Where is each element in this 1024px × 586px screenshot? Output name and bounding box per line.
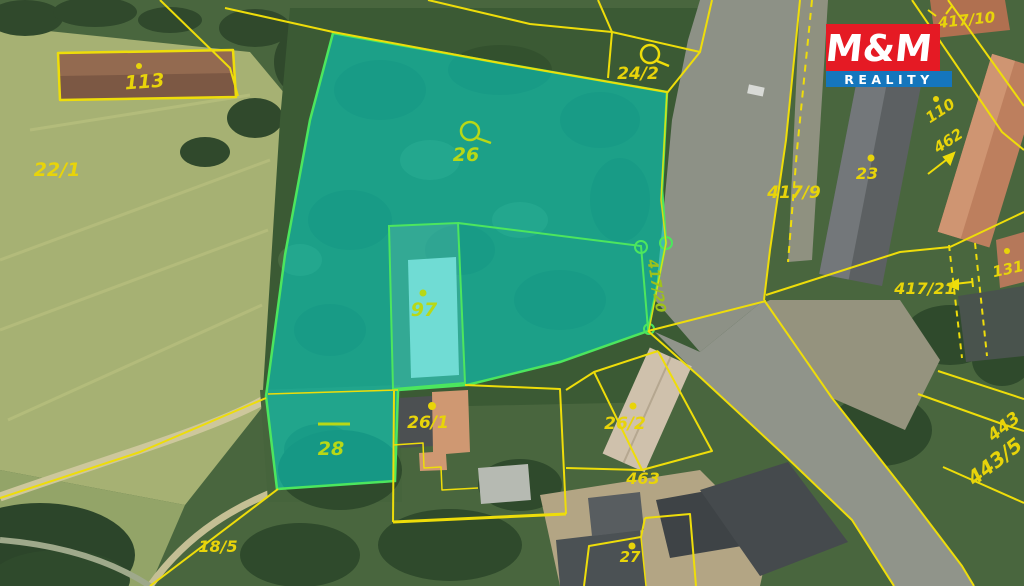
parcel-label-28: 28 (318, 438, 344, 460)
parcel-label-26-1: 26/1 (407, 413, 449, 433)
cadastral-map-screenshot: 113 22/1 26 24/2 417/10 417/9 23 110 462… (0, 0, 1024, 586)
parcel-label-463: 463 (625, 469, 659, 488)
parcel-label-24-2: 24/2 (617, 64, 659, 84)
building-dot-icon (420, 290, 427, 297)
logo-reality-text: REALITY (844, 72, 934, 87)
parcel-label-23: 23 (856, 164, 878, 183)
parcel-label-97: 97 (411, 299, 438, 321)
parcel-label-113: 113 (124, 70, 165, 95)
parcel-label-22-1: 22/1 (34, 159, 81, 181)
parcel-label-26: 26 (453, 144, 479, 166)
logo-mm-text: M&M (824, 27, 934, 70)
parcel-label-27: 27 (620, 548, 641, 566)
parcel-label-417-21: 417/21 (893, 279, 956, 298)
parcel-label-26-2: 26/2 (604, 414, 646, 434)
parcel-label-18-5: 18/5 (198, 537, 237, 556)
mm-reality-logo: M&M REALITY (824, 24, 952, 87)
parcel-label-417-9: 417/9 (766, 183, 821, 203)
